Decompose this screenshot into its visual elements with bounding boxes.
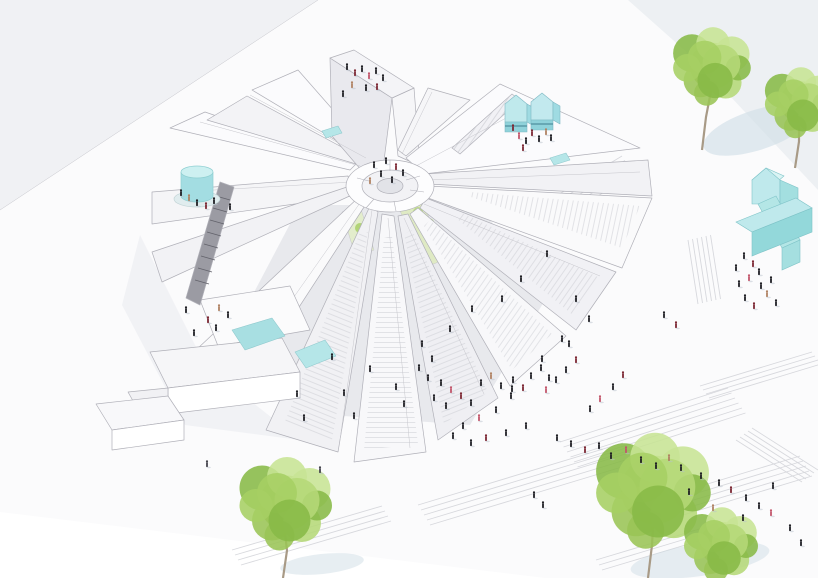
person-head <box>753 302 755 304</box>
person-body <box>185 308 187 313</box>
person-head <box>511 385 513 387</box>
person-head <box>610 452 612 454</box>
person-head <box>418 364 420 366</box>
person-head <box>730 486 732 488</box>
person-body <box>599 397 601 402</box>
person-body <box>402 171 404 176</box>
person-head <box>748 274 750 276</box>
person-body <box>520 277 522 282</box>
person-head <box>758 502 760 504</box>
person-body <box>196 201 198 206</box>
person-body <box>450 388 452 393</box>
person-head <box>766 290 768 292</box>
person-body <box>625 448 627 453</box>
person-head <box>542 501 544 503</box>
person-body <box>561 337 563 342</box>
person-body <box>369 367 371 372</box>
person-body <box>445 404 447 409</box>
person-body <box>640 458 642 463</box>
person-body <box>452 434 454 439</box>
person-body <box>742 516 744 521</box>
tree-canopy <box>632 485 684 537</box>
person-head <box>505 429 507 431</box>
person-head <box>525 137 527 139</box>
person-head <box>668 454 670 456</box>
person-body <box>478 416 480 421</box>
person-body <box>730 488 732 493</box>
person-head <box>351 81 353 83</box>
person-body <box>512 126 514 131</box>
person-head <box>205 202 207 204</box>
person-head <box>376 83 378 85</box>
person-head <box>495 406 497 408</box>
person-body <box>500 384 502 389</box>
person-body <box>391 178 393 183</box>
person-head <box>700 472 702 474</box>
person-head <box>775 299 777 301</box>
tank-top <box>181 166 213 178</box>
person-head <box>303 414 305 416</box>
person-head <box>331 353 333 355</box>
person-body <box>522 386 524 391</box>
person-body <box>538 137 540 142</box>
person-head <box>770 509 772 511</box>
person-head <box>522 144 524 146</box>
tree-canopy <box>707 541 741 575</box>
person-body <box>575 297 577 302</box>
person-head <box>382 74 384 76</box>
person-body <box>668 456 670 461</box>
person-body <box>351 83 353 88</box>
person-head <box>688 488 690 490</box>
person-body <box>789 526 791 531</box>
person-body <box>610 454 612 459</box>
person-body <box>680 466 682 471</box>
person-head <box>518 132 520 134</box>
person-head <box>752 260 754 262</box>
person-head <box>533 491 535 493</box>
person-head <box>380 170 382 172</box>
person-body <box>545 130 547 135</box>
person-body <box>180 191 182 196</box>
person-body <box>531 131 533 136</box>
person-head <box>760 282 762 284</box>
person-head <box>402 169 404 171</box>
person-head <box>500 382 502 384</box>
person-head <box>450 386 452 388</box>
person-head <box>735 264 737 266</box>
person-head <box>531 129 533 131</box>
person-body <box>395 165 397 170</box>
person-body <box>373 163 375 168</box>
person-body <box>418 366 420 371</box>
person-body <box>743 254 745 259</box>
person-head <box>213 197 215 199</box>
person-head <box>180 189 182 191</box>
person-body <box>433 396 435 401</box>
person-head <box>346 63 348 65</box>
person-head <box>368 72 370 74</box>
person-body <box>745 496 747 501</box>
person-body <box>522 146 524 151</box>
pavilion-band <box>505 122 527 132</box>
person-body <box>495 408 497 413</box>
pavilion-band <box>531 120 553 130</box>
tree-canopy <box>787 100 818 132</box>
person-body <box>512 378 514 383</box>
person-head <box>193 329 195 331</box>
person-head <box>575 295 577 297</box>
person-head <box>471 305 473 307</box>
person-head <box>490 372 492 374</box>
person-body <box>501 297 503 302</box>
person-head <box>546 250 548 252</box>
tree-canopy <box>269 500 311 542</box>
person-head <box>541 355 543 357</box>
person-body <box>575 358 577 363</box>
person-head <box>522 384 524 386</box>
person-body <box>354 71 356 76</box>
person-head <box>296 390 298 392</box>
person-head <box>478 414 480 416</box>
person-body <box>368 74 370 79</box>
person-body <box>565 368 567 373</box>
person-body <box>700 474 702 479</box>
radial-pavilion-rendering <box>0 0 818 578</box>
person-body <box>229 205 231 210</box>
person-body <box>218 306 220 311</box>
person-head <box>612 383 614 385</box>
person-body <box>775 301 777 306</box>
person-head <box>375 67 377 69</box>
person-body <box>331 355 333 360</box>
hub-oculus <box>377 179 403 194</box>
person-head <box>545 386 547 388</box>
person-head <box>207 316 209 318</box>
person-body <box>766 292 768 297</box>
person-head <box>589 405 591 407</box>
person-body <box>207 318 209 323</box>
person-body <box>588 317 590 322</box>
person-head <box>185 306 187 308</box>
person-head <box>343 389 345 391</box>
person-body <box>770 511 772 516</box>
person-body <box>770 278 772 283</box>
person-body <box>427 376 429 381</box>
person-body <box>570 442 572 447</box>
person-head <box>548 374 550 376</box>
person-body <box>753 304 755 309</box>
person-head <box>622 371 624 373</box>
person-head <box>599 395 601 397</box>
person-body <box>555 378 557 383</box>
person-head <box>427 374 429 376</box>
person-body <box>380 172 382 177</box>
person-body <box>744 296 746 301</box>
person-head <box>540 364 542 366</box>
person-head <box>395 383 397 385</box>
person-body <box>525 424 527 429</box>
person-head <box>800 539 802 541</box>
architectural-rendering-canvas <box>0 0 818 578</box>
person-body <box>688 490 690 495</box>
person-head <box>744 294 746 296</box>
person-head <box>462 422 464 424</box>
person-head <box>742 514 744 516</box>
person-body <box>622 373 624 378</box>
person-body <box>548 376 550 381</box>
person-head <box>525 422 527 424</box>
pavilion-side <box>553 102 560 124</box>
person-head <box>196 199 198 201</box>
person-body <box>655 464 657 469</box>
person-head <box>354 69 356 71</box>
person-head <box>361 65 363 67</box>
person-head <box>373 161 375 163</box>
person-body <box>758 504 760 509</box>
person-body <box>675 323 677 328</box>
person-body <box>556 436 558 441</box>
person-body <box>303 416 305 421</box>
person-body <box>213 199 215 204</box>
person-body <box>449 327 451 332</box>
person-head <box>470 399 472 401</box>
person-head <box>663 311 665 313</box>
person-head <box>395 163 397 165</box>
person-head <box>520 275 522 277</box>
person-body <box>375 69 377 74</box>
person-body <box>800 541 802 546</box>
person-body <box>598 444 600 449</box>
person-body <box>530 374 532 379</box>
person-head <box>460 392 462 394</box>
person-head <box>391 176 393 178</box>
person-body <box>712 506 714 511</box>
person-body <box>760 284 762 289</box>
person-head <box>680 464 682 466</box>
person-body <box>735 266 737 271</box>
person-body <box>550 136 552 141</box>
person-body <box>227 313 229 318</box>
person-head <box>440 379 442 381</box>
person-head <box>215 324 217 326</box>
person-body <box>542 503 544 508</box>
person-body <box>319 468 321 473</box>
person-head <box>588 315 590 317</box>
person-body <box>584 448 586 453</box>
person-head <box>568 340 570 342</box>
person-body <box>296 392 298 397</box>
person-head <box>556 434 558 436</box>
person-head <box>227 311 229 313</box>
person-body <box>546 252 548 257</box>
person-body <box>440 381 442 386</box>
person-head <box>675 321 677 323</box>
person-body <box>490 374 492 379</box>
person-body <box>748 276 750 281</box>
person-head <box>470 439 472 441</box>
person-body <box>612 385 614 390</box>
person-head <box>365 84 367 86</box>
person-head <box>229 203 231 205</box>
person-body <box>480 381 482 386</box>
person-body <box>369 179 371 184</box>
person-body <box>718 481 720 486</box>
person-body <box>541 357 543 362</box>
person-body <box>511 387 513 392</box>
person-body <box>568 342 570 347</box>
person-body <box>346 65 348 70</box>
person-body <box>738 282 740 287</box>
person-head <box>745 494 747 496</box>
person-head <box>758 268 760 270</box>
person-head <box>530 372 532 374</box>
person-head <box>565 366 567 368</box>
person-body <box>431 357 433 362</box>
person-body <box>518 134 520 139</box>
person-head <box>738 280 740 282</box>
person-head <box>538 135 540 137</box>
person-head <box>485 434 487 436</box>
person-head <box>319 466 321 468</box>
person-body <box>343 391 345 396</box>
person-head <box>512 124 514 126</box>
person-head <box>369 365 371 367</box>
person-head <box>550 134 552 136</box>
person-head <box>712 504 714 506</box>
person-head <box>445 402 447 404</box>
person-body <box>525 139 527 144</box>
person-head <box>570 440 572 442</box>
person-body <box>540 366 542 371</box>
person-head <box>598 442 600 444</box>
person-head <box>206 460 208 462</box>
person-body <box>772 484 774 489</box>
person-head <box>575 356 577 358</box>
person-body <box>382 76 384 81</box>
person-head <box>353 412 355 414</box>
person-head <box>655 462 657 464</box>
person-head <box>770 276 772 278</box>
person-head <box>584 446 586 448</box>
person-body <box>470 401 472 406</box>
person-head <box>369 177 371 179</box>
person-body <box>460 394 462 399</box>
person-body <box>361 67 363 72</box>
person-body <box>365 86 367 91</box>
person-body <box>385 159 387 164</box>
person-body <box>752 262 754 267</box>
person-body <box>470 441 472 446</box>
person-body <box>533 493 535 498</box>
person-body <box>462 424 464 429</box>
person-head <box>789 524 791 526</box>
person-head <box>421 340 423 342</box>
person-head <box>512 376 514 378</box>
person-body <box>589 407 591 412</box>
person-head <box>561 335 563 337</box>
person-head <box>342 90 344 92</box>
person-head <box>218 304 220 306</box>
central-hub <box>346 160 434 212</box>
person-body <box>663 313 665 318</box>
person-head <box>431 355 433 357</box>
person-body <box>215 326 217 331</box>
person-body <box>188 196 190 201</box>
person-head <box>433 394 435 396</box>
person-head <box>452 432 454 434</box>
person-body <box>193 331 195 336</box>
person-body <box>545 388 547 393</box>
person-body <box>471 307 473 312</box>
person-body <box>485 436 487 441</box>
person-body <box>421 342 423 347</box>
person-body <box>395 385 397 390</box>
person-body <box>758 270 760 275</box>
person-head <box>718 479 720 481</box>
person-body <box>353 414 355 419</box>
person-head <box>510 392 512 394</box>
person-head <box>403 400 405 402</box>
person-head <box>501 295 503 297</box>
person-head <box>480 379 482 381</box>
person-body <box>403 402 405 407</box>
person-body <box>206 462 208 467</box>
tree-canopy <box>697 63 732 98</box>
person-body <box>376 85 378 90</box>
person-head <box>188 194 190 196</box>
person-head <box>545 128 547 130</box>
person-head <box>385 157 387 159</box>
person-body <box>342 92 344 97</box>
person-head <box>772 482 774 484</box>
person-head <box>625 446 627 448</box>
person-head <box>555 376 557 378</box>
person-body <box>205 204 207 209</box>
person-body <box>505 431 507 436</box>
person-head <box>640 456 642 458</box>
person-head <box>743 252 745 254</box>
person-head <box>449 325 451 327</box>
person-body <box>510 394 512 399</box>
